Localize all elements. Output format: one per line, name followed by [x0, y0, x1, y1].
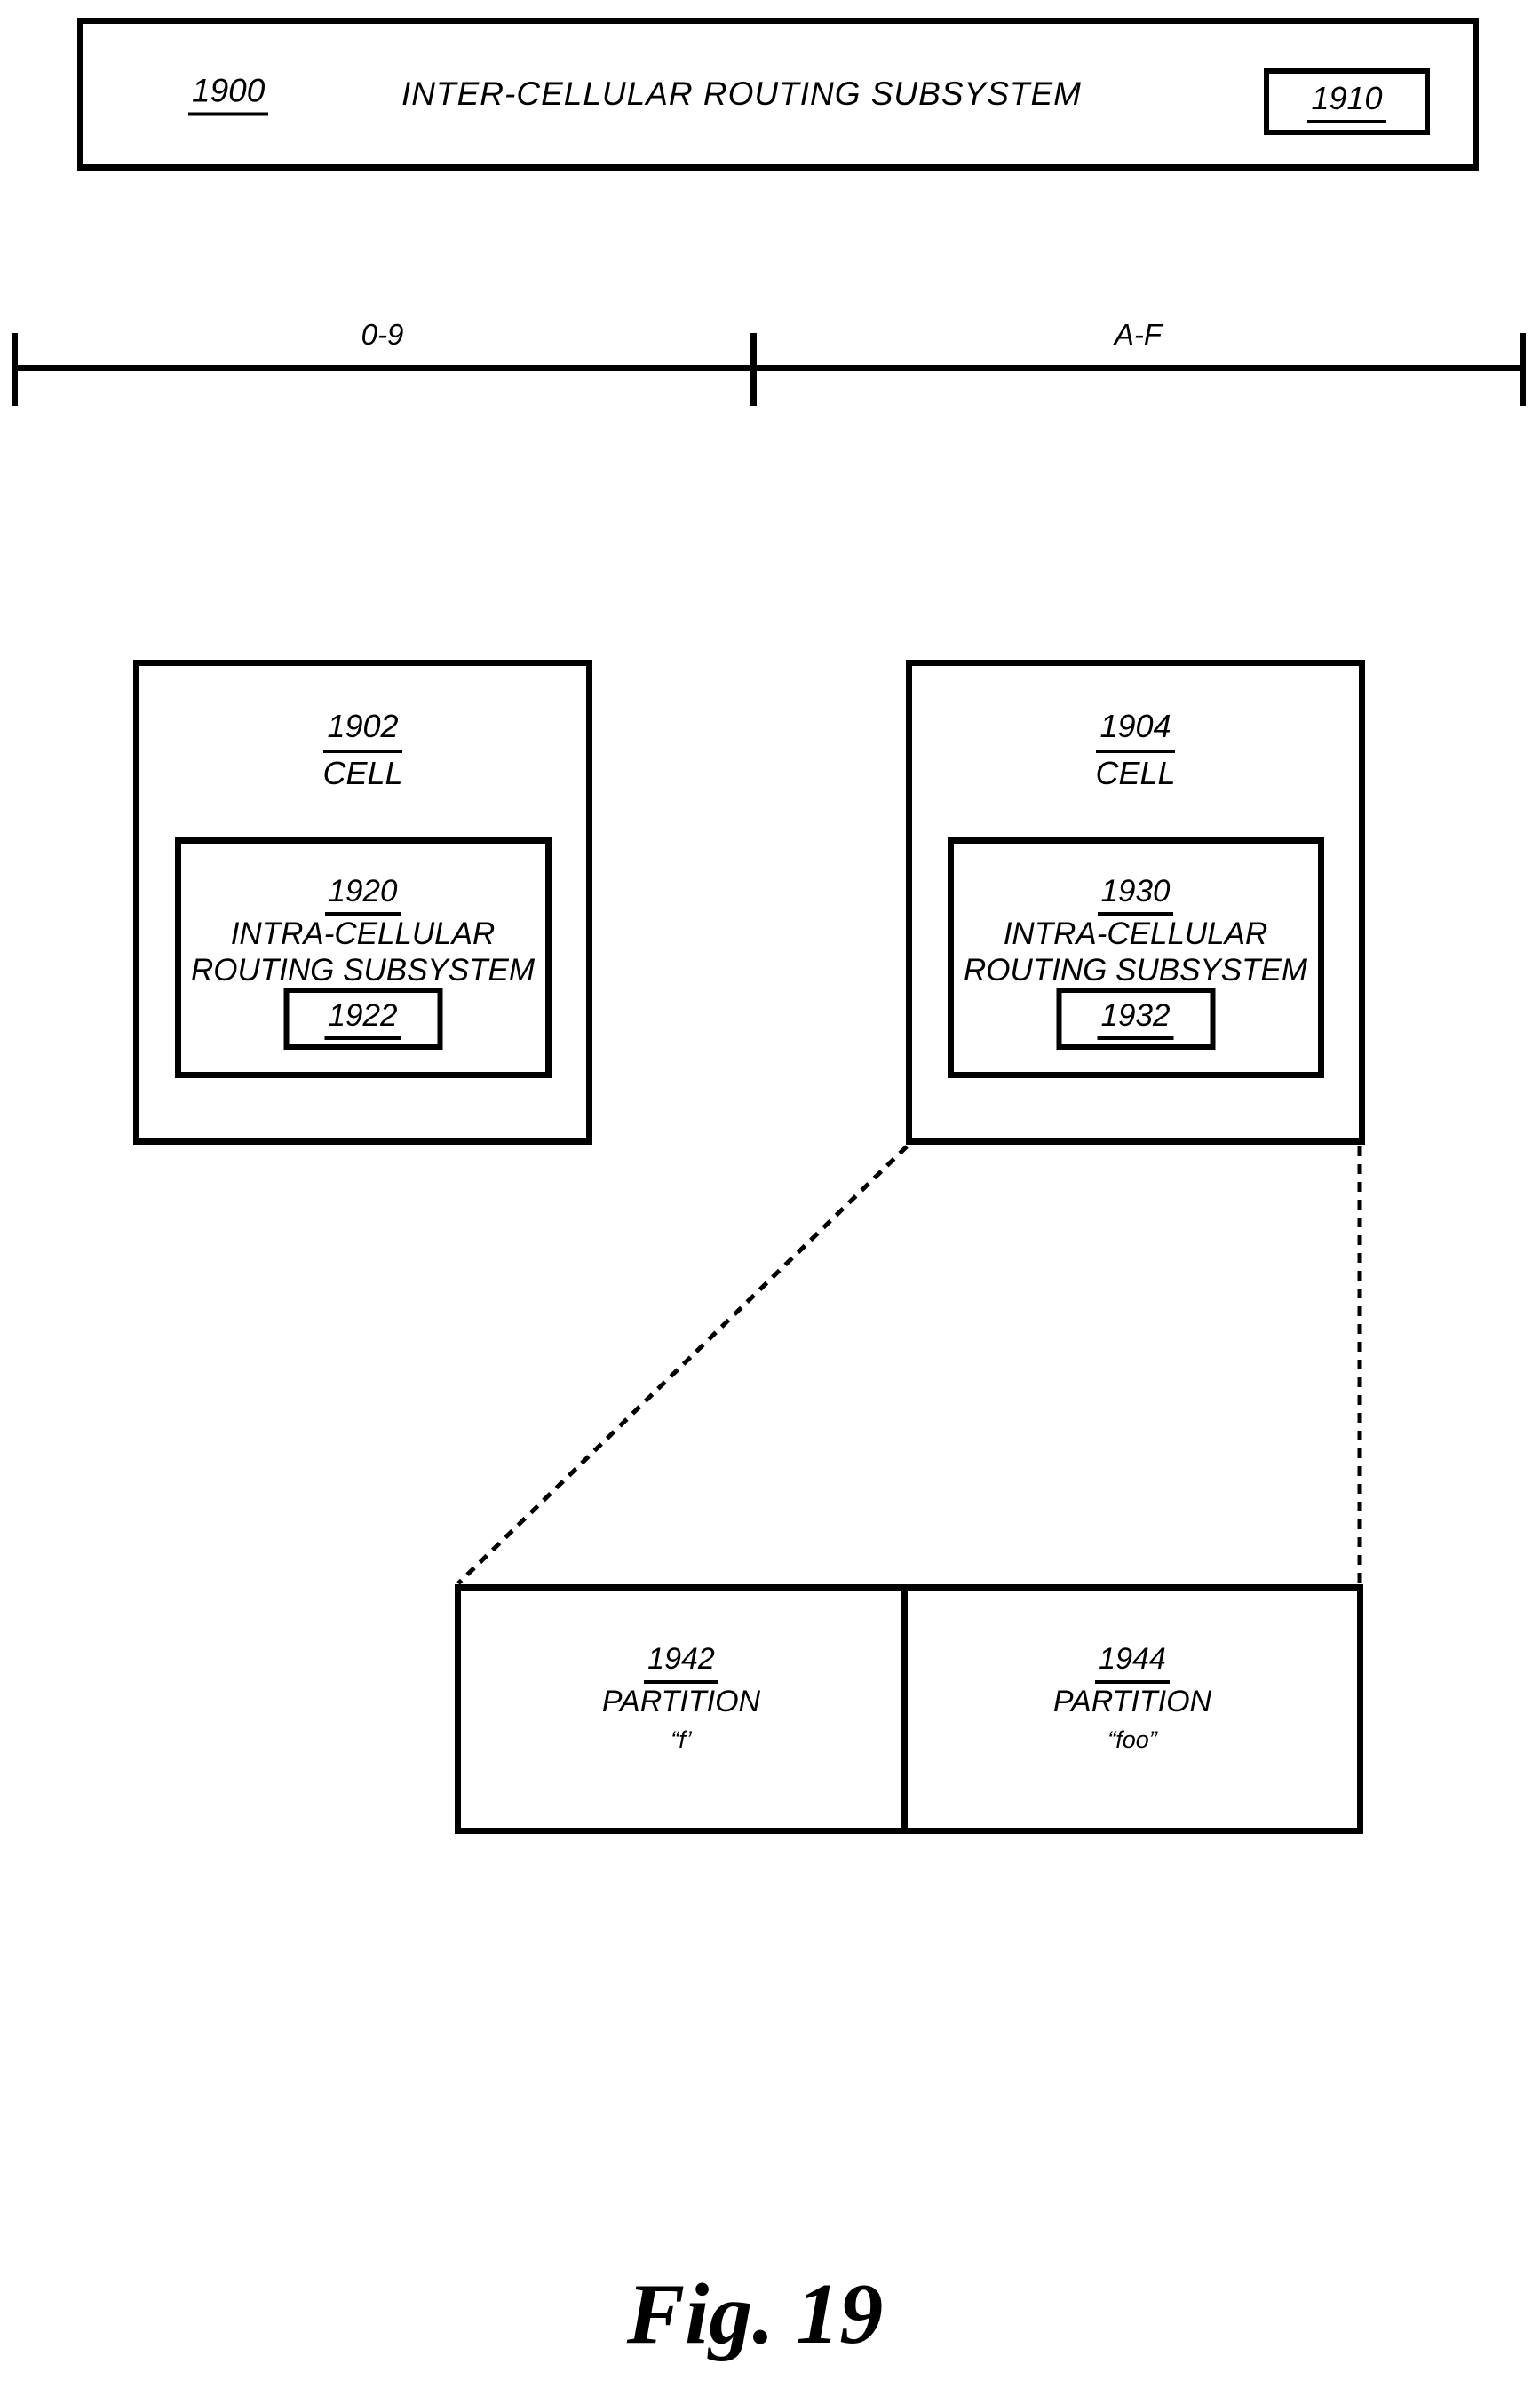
intra-cellular-routing-subsystem-1920-box: 1920 INTRA-CELLULAR ROUTING SUBSYSTEM 19… — [175, 837, 552, 1078]
partition-1944-box: 1944 PARTITION “foo” — [908, 1591, 1357, 1828]
partition-1944-label: PARTITION — [1053, 1685, 1211, 1718]
partition-1942-name: “f’ — [671, 1726, 692, 1753]
cell-1902-box: 1902 CELL 1920 INTRA-CELLULAR ROUTING SU… — [133, 660, 592, 1145]
cell-1904-label: CELL — [1095, 755, 1175, 791]
ref-1920-number: 1920 — [325, 873, 401, 916]
partitions-box: 1942 PARTITION “f’ 1944 PARTITION “foo” — [455, 1584, 1363, 1834]
cell-1904-header: 1904 CELL — [912, 706, 1359, 794]
partition-1944-name: “foo” — [1107, 1726, 1157, 1753]
ref-1944-number: 1944 — [1095, 1641, 1170, 1684]
subsystem-1920-name-line2: ROUTING SUBSYSTEM — [191, 953, 535, 988]
scale-tick-right — [1520, 333, 1526, 406]
partition-1942-box: 1942 PARTITION “f’ — [461, 1591, 908, 1828]
scale-label-a-f: A-F — [753, 318, 1523, 352]
box-1932: 1932 — [1056, 988, 1215, 1050]
inter-cellular-routing-subsystem-box: 1900 INTER-CELLULAR ROUTING SUBSYSTEM 19… — [77, 18, 1479, 171]
subsystem-1930-name-line2: ROUTING SUBSYSTEM — [964, 953, 1307, 988]
cell-1904-box: 1904 CELL 1930 INTRA-CELLULAR ROUTING SU… — [906, 660, 1365, 1145]
ref-1902-number: 1902 — [323, 706, 401, 753]
scale-axis-line — [12, 365, 1526, 371]
box-1922: 1922 — [283, 988, 442, 1050]
ref-1930-number: 1930 — [1098, 873, 1174, 916]
intra-cellular-routing-subsystem-1930-box: 1930 INTRA-CELLULAR ROUTING SUBSYSTEM 19… — [948, 837, 1324, 1078]
scale-tick-left — [12, 333, 18, 406]
patent-figure-page: 1900 INTER-CELLULAR ROUTING SUBSYSTEM 19… — [0, 0, 1540, 2388]
connector-lines — [0, 0, 1540, 2388]
figure-caption: Fig. 19 — [0, 2265, 1510, 2364]
ref-1932-number: 1932 — [1098, 998, 1174, 1040]
subsystem-1920-text: 1920 INTRA-CELLULAR ROUTING SUBSYSTEM — [181, 873, 545, 988]
ref-1904-number: 1904 — [1096, 706, 1174, 753]
partition-1942-text: 1942 PARTITION “f’ — [461, 1641, 901, 1757]
partition-1942-label: PARTITION — [602, 1685, 760, 1718]
subsystem-1930-text: 1930 INTRA-CELLULAR ROUTING SUBSYSTEM — [954, 873, 1318, 988]
partition-1944-text: 1944 PARTITION “foo” — [908, 1641, 1357, 1757]
partition-expansion-line-diagonal — [458, 1146, 907, 1583]
inter-cellular-routing-subsystem-title: INTER-CELLULAR ROUTING SUBSYSTEM — [401, 75, 1082, 113]
subsystem-1930-name-line1: INTRA-CELLULAR — [1004, 916, 1268, 951]
ref-1900: 1900 — [188, 73, 268, 116]
ref-1900-number: 1900 — [188, 73, 268, 116]
box-1910: 1910 — [1264, 68, 1430, 135]
scale-label-0-9: 0-9 — [12, 318, 753, 352]
cell-1902-header: 1902 CELL — [139, 706, 586, 794]
ref-1910-number: 1910 — [1307, 80, 1385, 123]
ref-1942-number: 1942 — [644, 1641, 718, 1684]
cell-1902-label: CELL — [322, 755, 402, 791]
scale-tick-middle — [750, 333, 757, 406]
subsystem-1920-name-line1: INTRA-CELLULAR — [231, 916, 496, 951]
ref-1922-number: 1922 — [325, 998, 401, 1040]
